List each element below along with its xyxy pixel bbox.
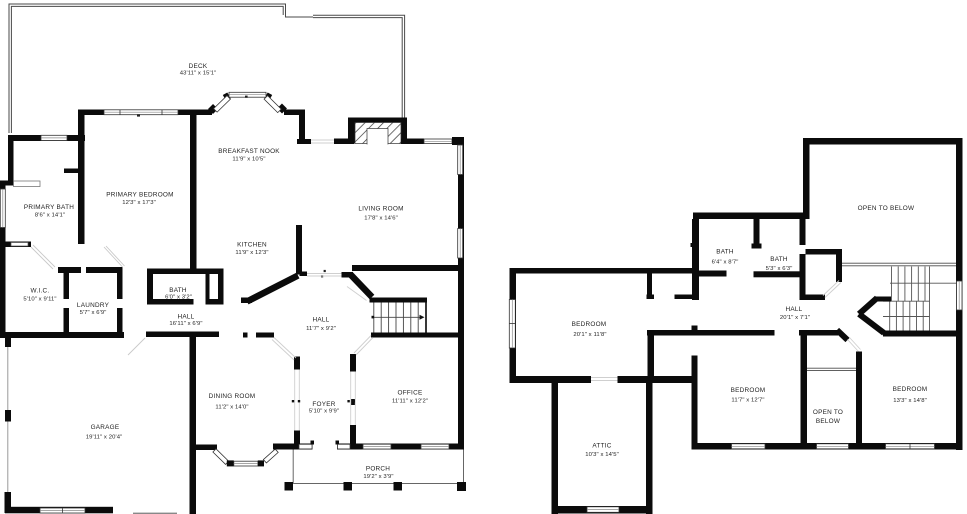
svg-text:BEDROOM: BEDROOM xyxy=(731,387,766,394)
svg-text:19'2" x 3'9": 19'2" x 3'9" xyxy=(363,474,393,480)
svg-text:11'9" x 10'5": 11'9" x 10'5" xyxy=(232,157,265,163)
svg-text:PRIMARY BATH: PRIMARY BATH xyxy=(24,204,74,211)
svg-text:19'11" x 20'4": 19'11" x 20'4" xyxy=(86,435,123,441)
svg-text:FOYER: FOYER xyxy=(312,401,335,408)
svg-text:BEDROOM: BEDROOM xyxy=(572,321,607,328)
svg-text:BATH: BATH xyxy=(770,256,788,263)
svg-text:6'4" x 8'7": 6'4" x 8'7" xyxy=(712,260,739,266)
svg-text:11'2" x 14'0": 11'2" x 14'0" xyxy=(215,405,248,411)
svg-text:HALL: HALL xyxy=(178,313,195,320)
svg-text:KITCHEN: KITCHEN xyxy=(237,242,267,249)
svg-text:OFFICE: OFFICE xyxy=(398,390,423,397)
svg-text:BREAKFAST NOOK: BREAKFAST NOOK xyxy=(218,148,280,155)
svg-text:HALL: HALL xyxy=(313,317,330,324)
svg-text:5'3" x 6'3": 5'3" x 6'3" xyxy=(766,266,793,272)
svg-text:10'3" x 14'5": 10'3" x 14'5" xyxy=(585,452,619,458)
svg-text:OPEN TO: OPEN TO xyxy=(813,409,843,416)
svg-text:5'7" x 6'9": 5'7" x 6'9" xyxy=(80,310,107,316)
svg-text:HALL: HALL xyxy=(786,306,803,313)
svg-text:11'7" x 9'2": 11'7" x 9'2" xyxy=(306,326,336,332)
svg-text:BEDROOM: BEDROOM xyxy=(893,386,928,393)
svg-text:OPEN TO BELOW: OPEN TO BELOW xyxy=(858,205,915,212)
svg-text:11'7" x 12'7": 11'7" x 12'7" xyxy=(731,398,764,404)
svg-text:LAUNDRY: LAUNDRY xyxy=(77,302,110,309)
svg-text:DINING ROOM: DINING ROOM xyxy=(209,393,256,400)
svg-text:8'6" x 14'1": 8'6" x 14'1" xyxy=(35,213,65,219)
svg-text:11'11" x 12'2": 11'11" x 12'2" xyxy=(392,399,428,405)
svg-text:ATTIC: ATTIC xyxy=(592,443,611,450)
svg-text:5'10" x 9'9": 5'10" x 9'9" xyxy=(309,408,339,414)
svg-text:17'8" x 14'6": 17'8" x 14'6" xyxy=(364,216,398,222)
svg-text:20'1" x 7'1": 20'1" x 7'1" xyxy=(780,315,810,321)
svg-text:BELOW: BELOW xyxy=(816,418,841,425)
svg-text:13'3" x 14'8": 13'3" x 14'8" xyxy=(893,398,927,404)
svg-text:12'3" x 17'3": 12'3" x 17'3" xyxy=(122,200,156,206)
svg-text:GARAGE: GARAGE xyxy=(91,424,120,431)
svg-text:DECK: DECK xyxy=(189,63,208,70)
svg-text:BATH: BATH xyxy=(169,287,187,294)
svg-text:BATH: BATH xyxy=(716,249,734,256)
svg-text:LIVING ROOM: LIVING ROOM xyxy=(358,206,403,213)
svg-text:43'11" x 15'1": 43'11" x 15'1" xyxy=(180,71,217,77)
svg-text:11'9" x 12'3": 11'9" x 12'3" xyxy=(235,250,268,256)
svg-text:W.I.C.: W.I.C. xyxy=(31,288,50,295)
svg-text:16'11" x 6'9": 16'11" x 6'9" xyxy=(169,321,202,327)
svg-text:5'10" x 9'11": 5'10" x 9'11" xyxy=(23,297,56,303)
svg-text:PORCH: PORCH xyxy=(366,466,390,473)
svg-text:20'1" x 11'8": 20'1" x 11'8" xyxy=(573,332,606,338)
svg-text:PRIMARY BEDROOM: PRIMARY BEDROOM xyxy=(106,192,173,199)
svg-text:6'0" x 3'2": 6'0" x 3'2" xyxy=(165,295,192,301)
